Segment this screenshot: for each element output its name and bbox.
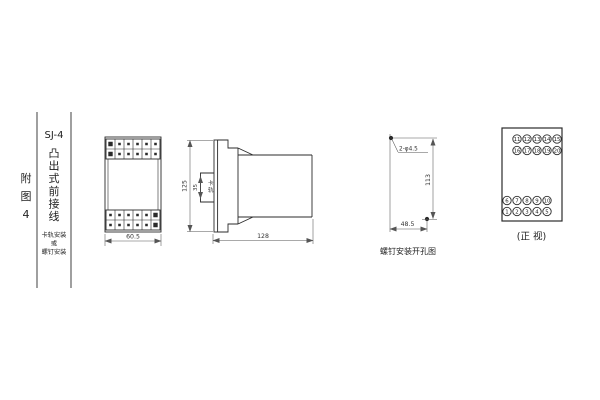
terminal-number: 19 <box>544 148 551 154</box>
terminal-number: 14 <box>544 137 551 143</box>
type-char: 前 <box>49 184 60 198</box>
mount-note-line: 螺钉安装 <box>42 248 67 256</box>
clip-label-char: 卡 <box>208 179 214 187</box>
mount-note-line: 卡轨安装 <box>42 231 67 239</box>
terminal-number: 17 <box>524 148 531 154</box>
type-char: 凸 <box>49 147 60 160</box>
terminal-number: 5 <box>545 209 548 215</box>
title-block: 附 图 4 SJ-4 凸 出 式 前 接 线 卡轨安装 或 螺钉安装 <box>21 112 72 288</box>
terminal-number: 9 <box>535 198 539 204</box>
drill-bottom-extensions <box>422 220 437 233</box>
terminal-number-view: 11 12 13 14 15 16 17 18 19 20 6 7 8 9 10… <box>502 128 562 243</box>
type-char: 出 <box>49 159 60 173</box>
figure-label-char: 附 <box>21 171 32 185</box>
mount-note-line: 或 <box>51 240 57 248</box>
terminal-number: 3 <box>525 209 528 215</box>
depth-dim-value: 128 <box>257 233 269 240</box>
terminal-number: 2 <box>515 209 518 215</box>
terminal-grid-top <box>106 139 160 159</box>
width-dim-value: 60.5 <box>126 234 140 241</box>
terminal-number: 15 <box>554 137 561 143</box>
terminal-number: 7 <box>515 198 518 204</box>
terminal-number: 1 <box>505 209 508 215</box>
terminal-number: 18 <box>534 148 541 154</box>
front-view: 60.5 <box>105 137 161 246</box>
model-label: SJ-4 <box>45 130 64 141</box>
terminal-number: 4 <box>535 209 539 215</box>
drill-hole-top <box>389 136 393 140</box>
drill-view-caption: 螺钉安装开孔图 <box>380 246 436 256</box>
terminal-number: 13 <box>534 137 541 143</box>
drill-view: 2-φ4.5 113 48.5 螺钉安装开孔图 <box>380 134 437 256</box>
drill-horizontal-dim-value: 48.5 <box>401 221 415 228</box>
drill-vertical-dim-value: 113 <box>425 174 432 186</box>
front-plate <box>214 140 218 232</box>
terminal-number: 12 <box>524 137 531 143</box>
terminal-number: 10 <box>544 198 551 204</box>
technical-drawing: 附 图 4 SJ-4 凸 出 式 前 接 线 卡轨安装 或 螺钉安装 60.5 <box>0 0 600 400</box>
body-outline <box>218 140 312 232</box>
type-char: 线 <box>49 209 60 223</box>
hole-label: 2-φ4.5 <box>399 147 418 153</box>
terminal-number: 20 <box>554 148 561 154</box>
terminal-view-caption: (正 视) <box>517 231 546 243</box>
type-char: 式 <box>49 172 60 185</box>
side-view: 125 35 卡 轨 128 <box>182 140 314 244</box>
figure-label-char: 图 <box>21 190 32 203</box>
drill-hole-bottom <box>425 217 429 221</box>
clip-dim-value: 35 <box>193 184 199 191</box>
terminal-grid-bottom <box>106 210 160 230</box>
type-char: 接 <box>49 197 60 210</box>
terminal-number: 16 <box>514 148 521 154</box>
terminal-number: 8 <box>525 198 529 204</box>
figure-label-char: 4 <box>23 208 30 221</box>
clip-label-char: 轨 <box>208 186 214 194</box>
drawing-sheet: 附 图 4 SJ-4 凸 出 式 前 接 线 卡轨安装 或 螺钉安装 60.5 <box>0 0 600 400</box>
height-dim-value: 125 <box>182 180 189 192</box>
terminal-number: 11 <box>514 137 521 143</box>
terminal-number: 6 <box>505 198 509 204</box>
